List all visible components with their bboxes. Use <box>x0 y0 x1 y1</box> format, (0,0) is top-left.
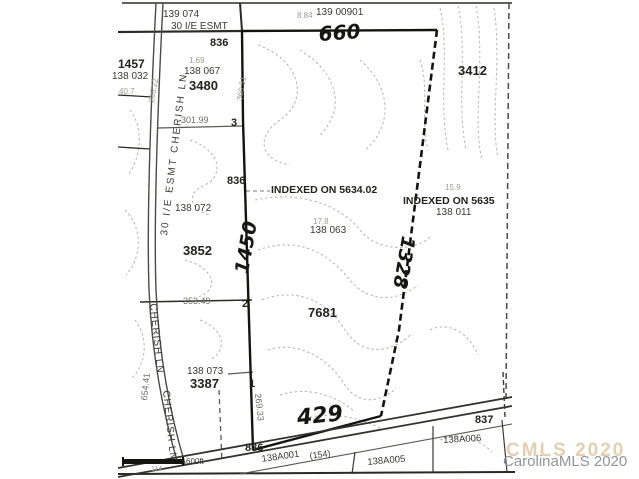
map-right-dashed-edge <box>506 3 509 398</box>
parcel-label-3852: 3852 <box>183 244 212 257</box>
dim-353-49: 353.49 <box>183 297 211 306</box>
contour-elevation-836-top: 836 <box>210 38 228 49</box>
dim-269-33: 269.33 <box>253 393 265 421</box>
handwritten-429: 429 <box>296 403 344 430</box>
contour-elevation-836-mid: 836 <box>227 176 245 187</box>
parcel-label-138-072: 138 072 <box>175 204 211 214</box>
plat-map-scan: 139 074 30 I/E ESMT 836 8.84 139 00901 1… <box>0 0 639 479</box>
parcel-label-7681: 7681 <box>308 306 337 319</box>
parcel-label-138-063: 138 063 <box>310 226 346 236</box>
dim-40-7: 40.7 <box>119 88 135 96</box>
scale-bar-label: 600ft <box>186 458 204 466</box>
map-bottom-border <box>118 472 515 474</box>
parcel-label-3480: 3480 <box>189 79 218 92</box>
lot1-line <box>228 372 253 374</box>
parcel-label-138-032: 138 032 <box>112 72 148 82</box>
parcel-label-3412: 3412 <box>458 64 487 77</box>
parcel-label-139-074: 139 074 <box>163 10 199 20</box>
indexed-note-5635: INDEXED ON 5635 <box>403 196 495 207</box>
contour-elevation-836-bottom: 836 <box>245 443 263 454</box>
dim-15-9: 15.9 <box>445 184 461 192</box>
lot-number-2: 2 <box>242 299 248 310</box>
indexed-note-5634: INDEXED ON 5634.02 <box>271 185 377 196</box>
parcel-label-1457: 1457 <box>118 58 145 70</box>
parcel-label-3387: 3387 <box>190 377 219 390</box>
mls-watermark: CarolinaMLS 2020 <box>503 453 627 470</box>
dim-301-99: 301.99 <box>181 116 209 125</box>
lot-number-3: 3 <box>231 118 237 129</box>
contour-elevation-837: 837 <box>475 415 493 426</box>
dim-884: 8.84 <box>297 12 313 20</box>
parcel-label-139-00901: 139 00901 <box>316 8 363 18</box>
parcel-label-138A006: 138A006 <box>443 434 481 445</box>
easement-label-top: 30 I/E ESMT <box>171 22 228 32</box>
dim-114: 114 <box>151 466 162 473</box>
dim-1-69: 1.69 <box>189 57 205 65</box>
parcel-label-138-011: 138 011 <box>436 208 471 218</box>
lot3-line <box>158 126 242 128</box>
lot-number-1: 1 <box>249 379 255 390</box>
handwritten-660: 660 <box>318 21 361 44</box>
